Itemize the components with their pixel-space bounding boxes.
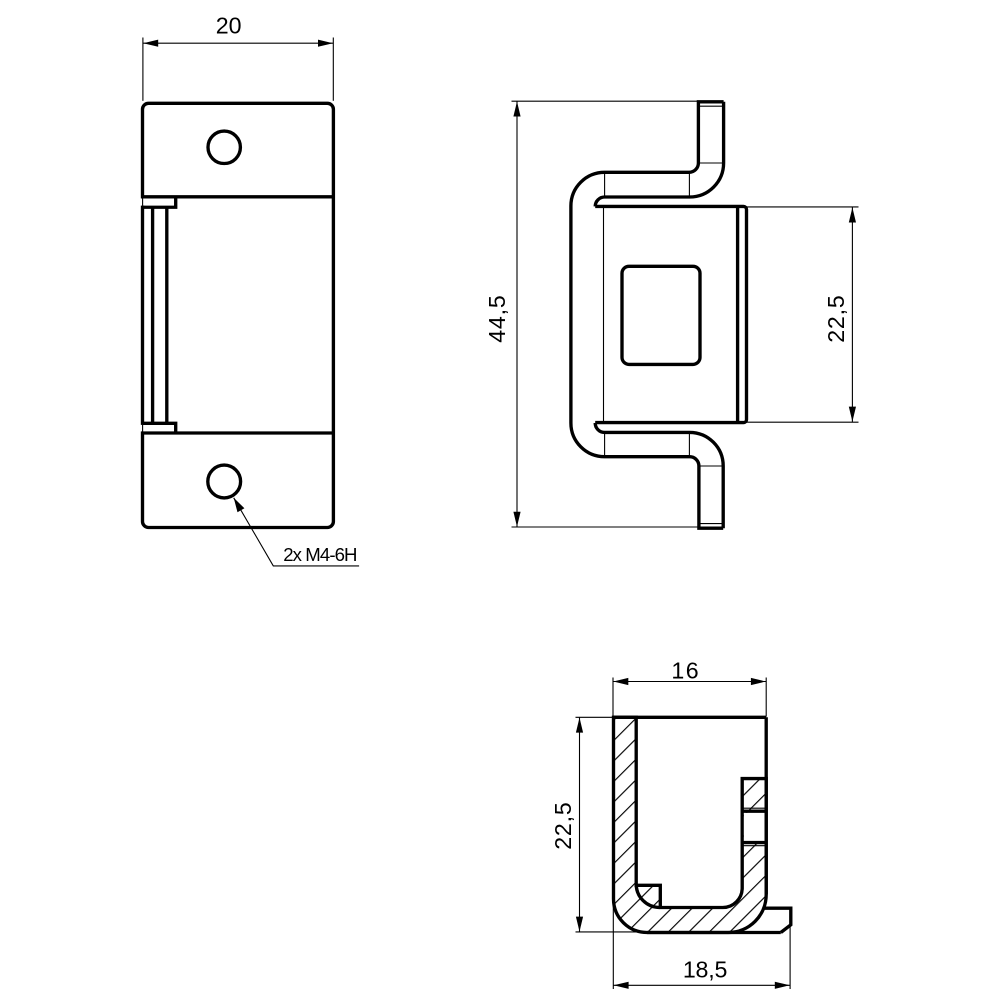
svg-text:16: 16 xyxy=(671,658,700,684)
svg-text:20: 20 xyxy=(216,12,242,38)
svg-text:44,5: 44,5 xyxy=(484,294,510,342)
svg-text:2x M4-6H: 2x M4-6H xyxy=(283,544,356,565)
svg-text:22,5: 22,5 xyxy=(550,801,576,849)
svg-text:18,5: 18,5 xyxy=(683,957,727,983)
svg-text:22,5: 22,5 xyxy=(823,294,849,342)
